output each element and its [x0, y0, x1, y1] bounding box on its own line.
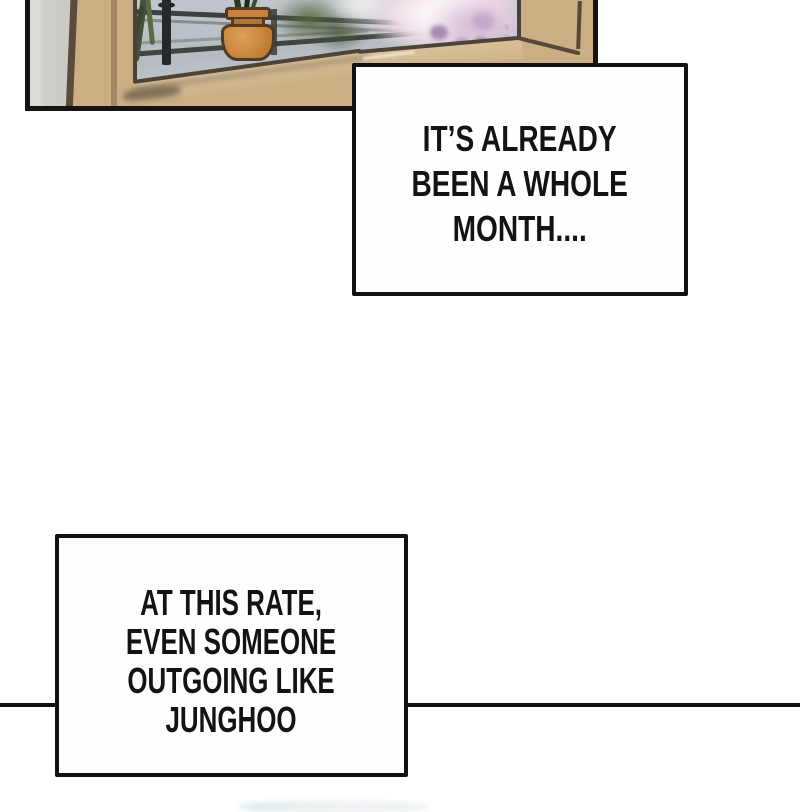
caption-line: JUNGHOO — [126, 700, 336, 739]
caption-1-text: IT’S ALREADY BEEN A WHOLE MONTH.... — [412, 116, 628, 251]
caption-box-2: AT THIS RATE, EVEN SOMEONE OUTGOING LIKE… — [55, 534, 408, 777]
faint-cutoff-text — [238, 801, 430, 812]
caption-line: OUTGOING LIKE — [126, 661, 336, 700]
blossom-dot — [430, 25, 448, 40]
caption-line: BEEN A WHOLE — [412, 161, 628, 206]
plant-pot-body — [221, 24, 275, 61]
window-frame-band — [111, 0, 117, 106]
caption-2-text: AT THIS RATE, EVEN SOMEONE OUTGOING LIKE… — [126, 583, 336, 739]
window-jamb-edge — [518, 36, 581, 55]
caption-line: AT THIS RATE, — [126, 583, 336, 622]
railing-post — [162, 0, 171, 65]
window-inner-edge-right — [517, 0, 521, 37]
caption-line: IT’S ALREADY — [412, 116, 628, 161]
blossom-dot — [472, 13, 494, 30]
caption-line: EVEN SOMEONE — [126, 622, 336, 661]
window-jamb-outer-edge — [576, 1, 582, 49]
comic-page: IT’S ALREADY BEEN A WHOLE MONTH.... AT T… — [0, 0, 800, 812]
caption-line: MONTH.... — [412, 206, 628, 251]
gray-wall — [30, 0, 70, 106]
plant-stem — [144, 0, 155, 45]
caption-box-1: IT’S ALREADY BEEN A WHOLE MONTH.... — [352, 63, 688, 296]
railing-post-knob — [158, 2, 175, 8]
window-inner-edge-left — [133, 0, 137, 82]
